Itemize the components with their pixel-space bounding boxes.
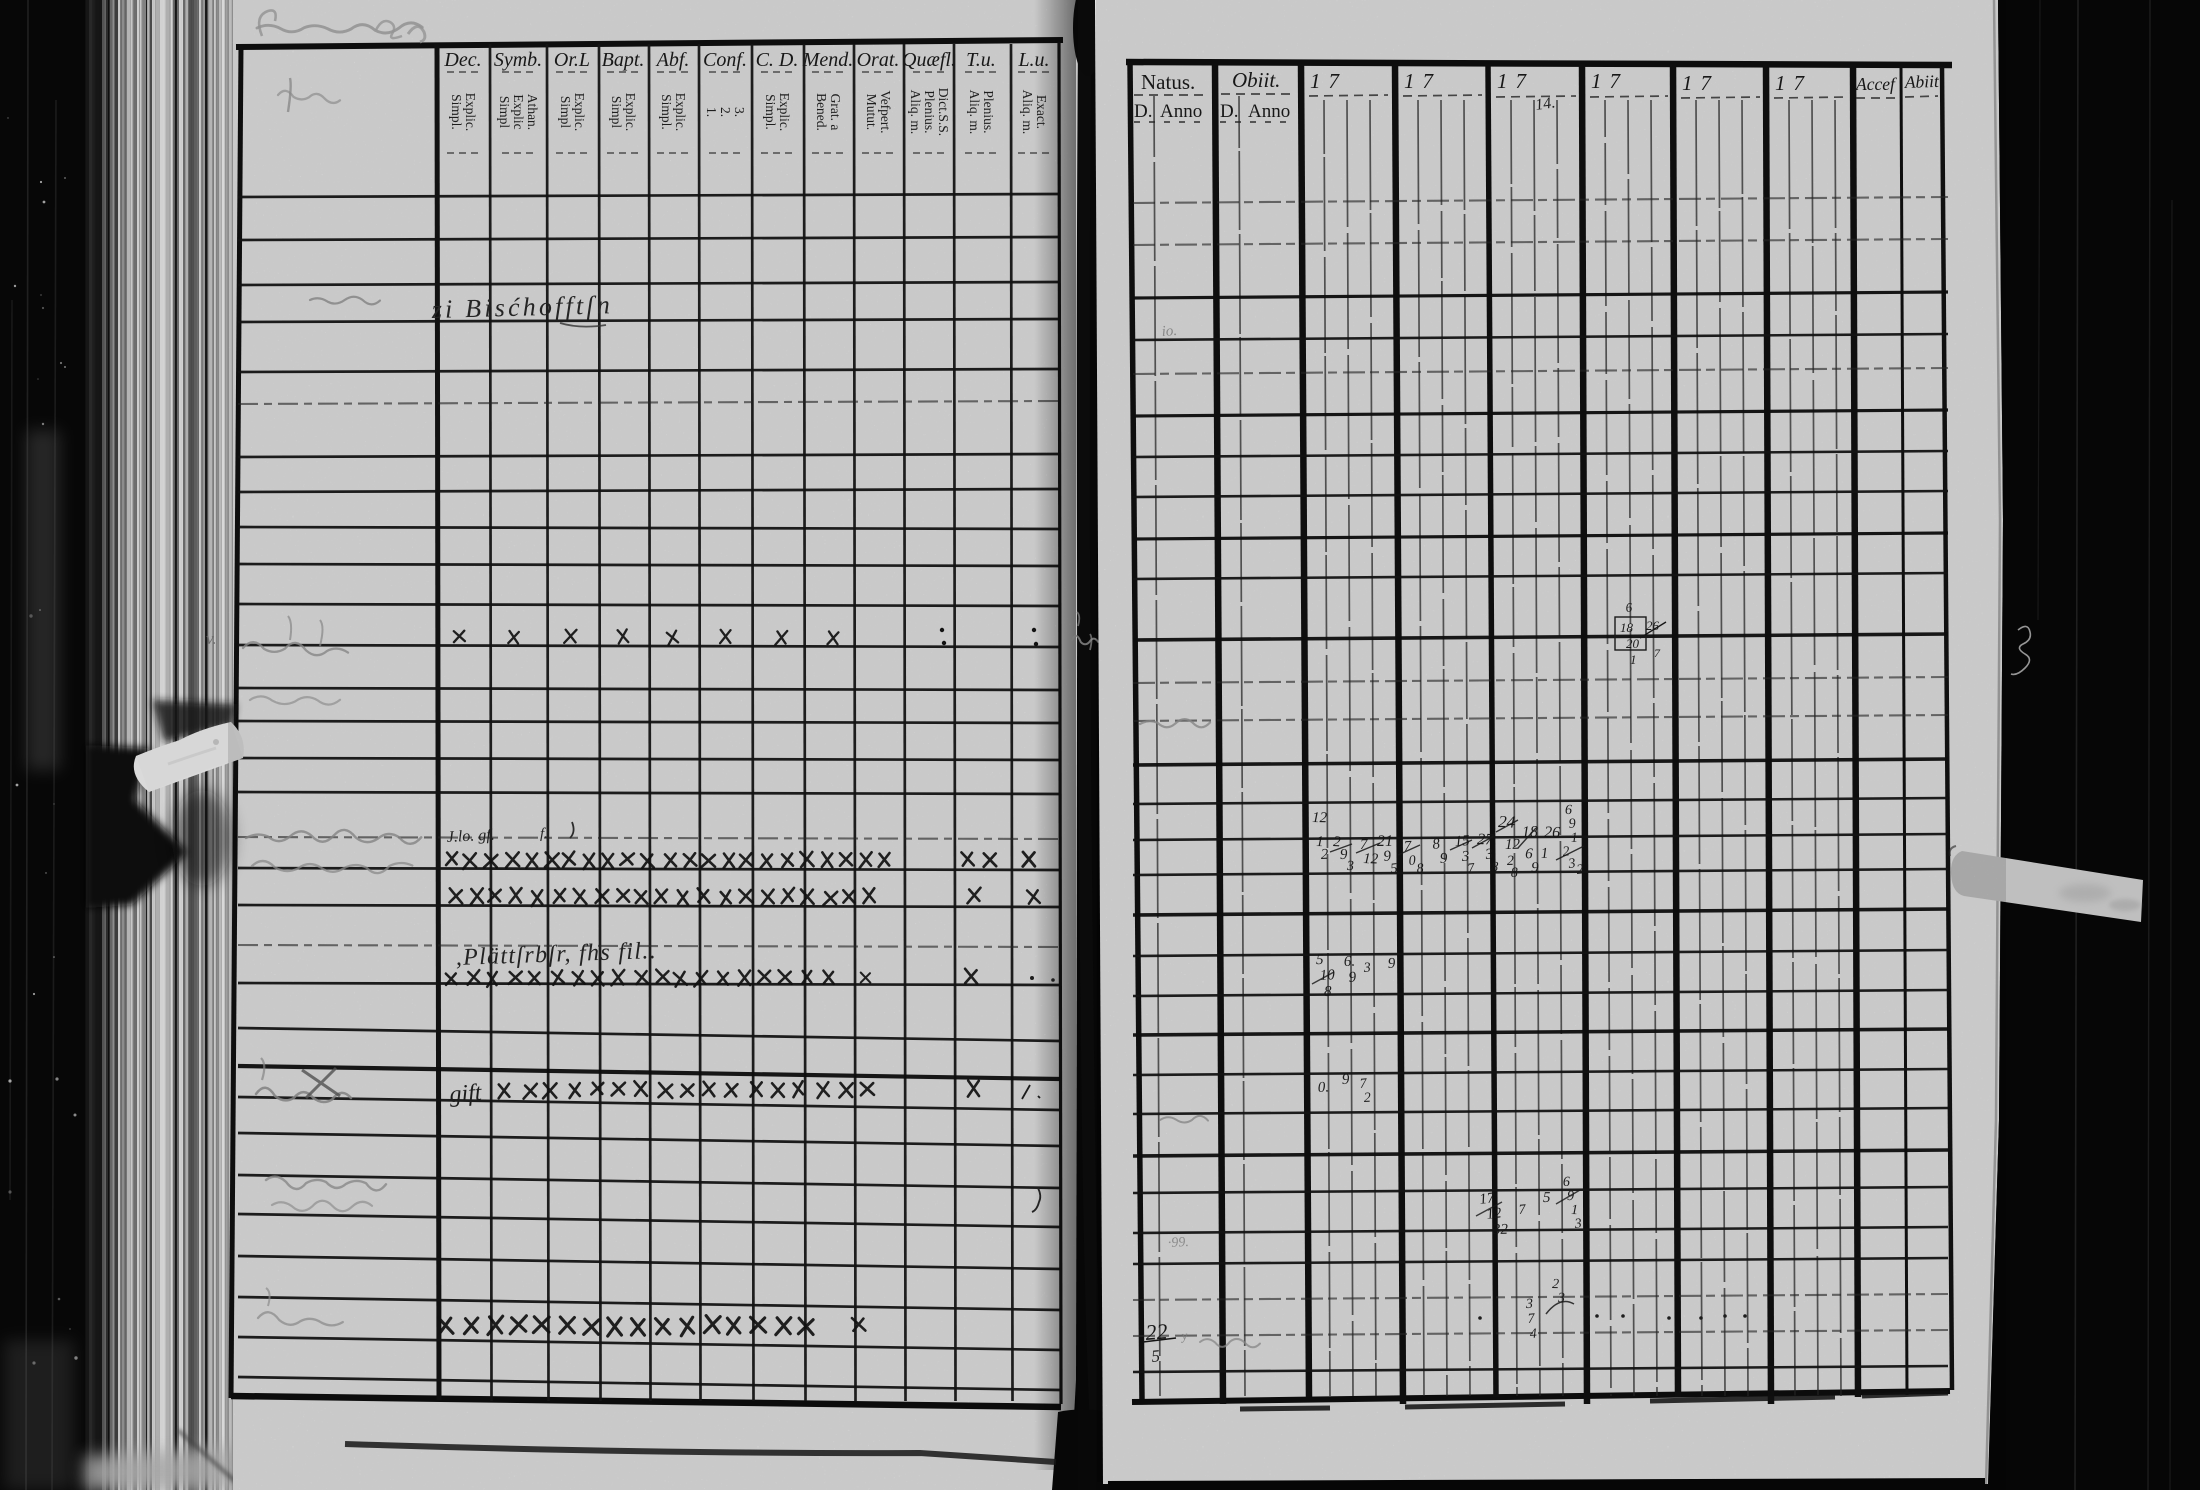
svg-text:v.: v.: [206, 629, 217, 648]
